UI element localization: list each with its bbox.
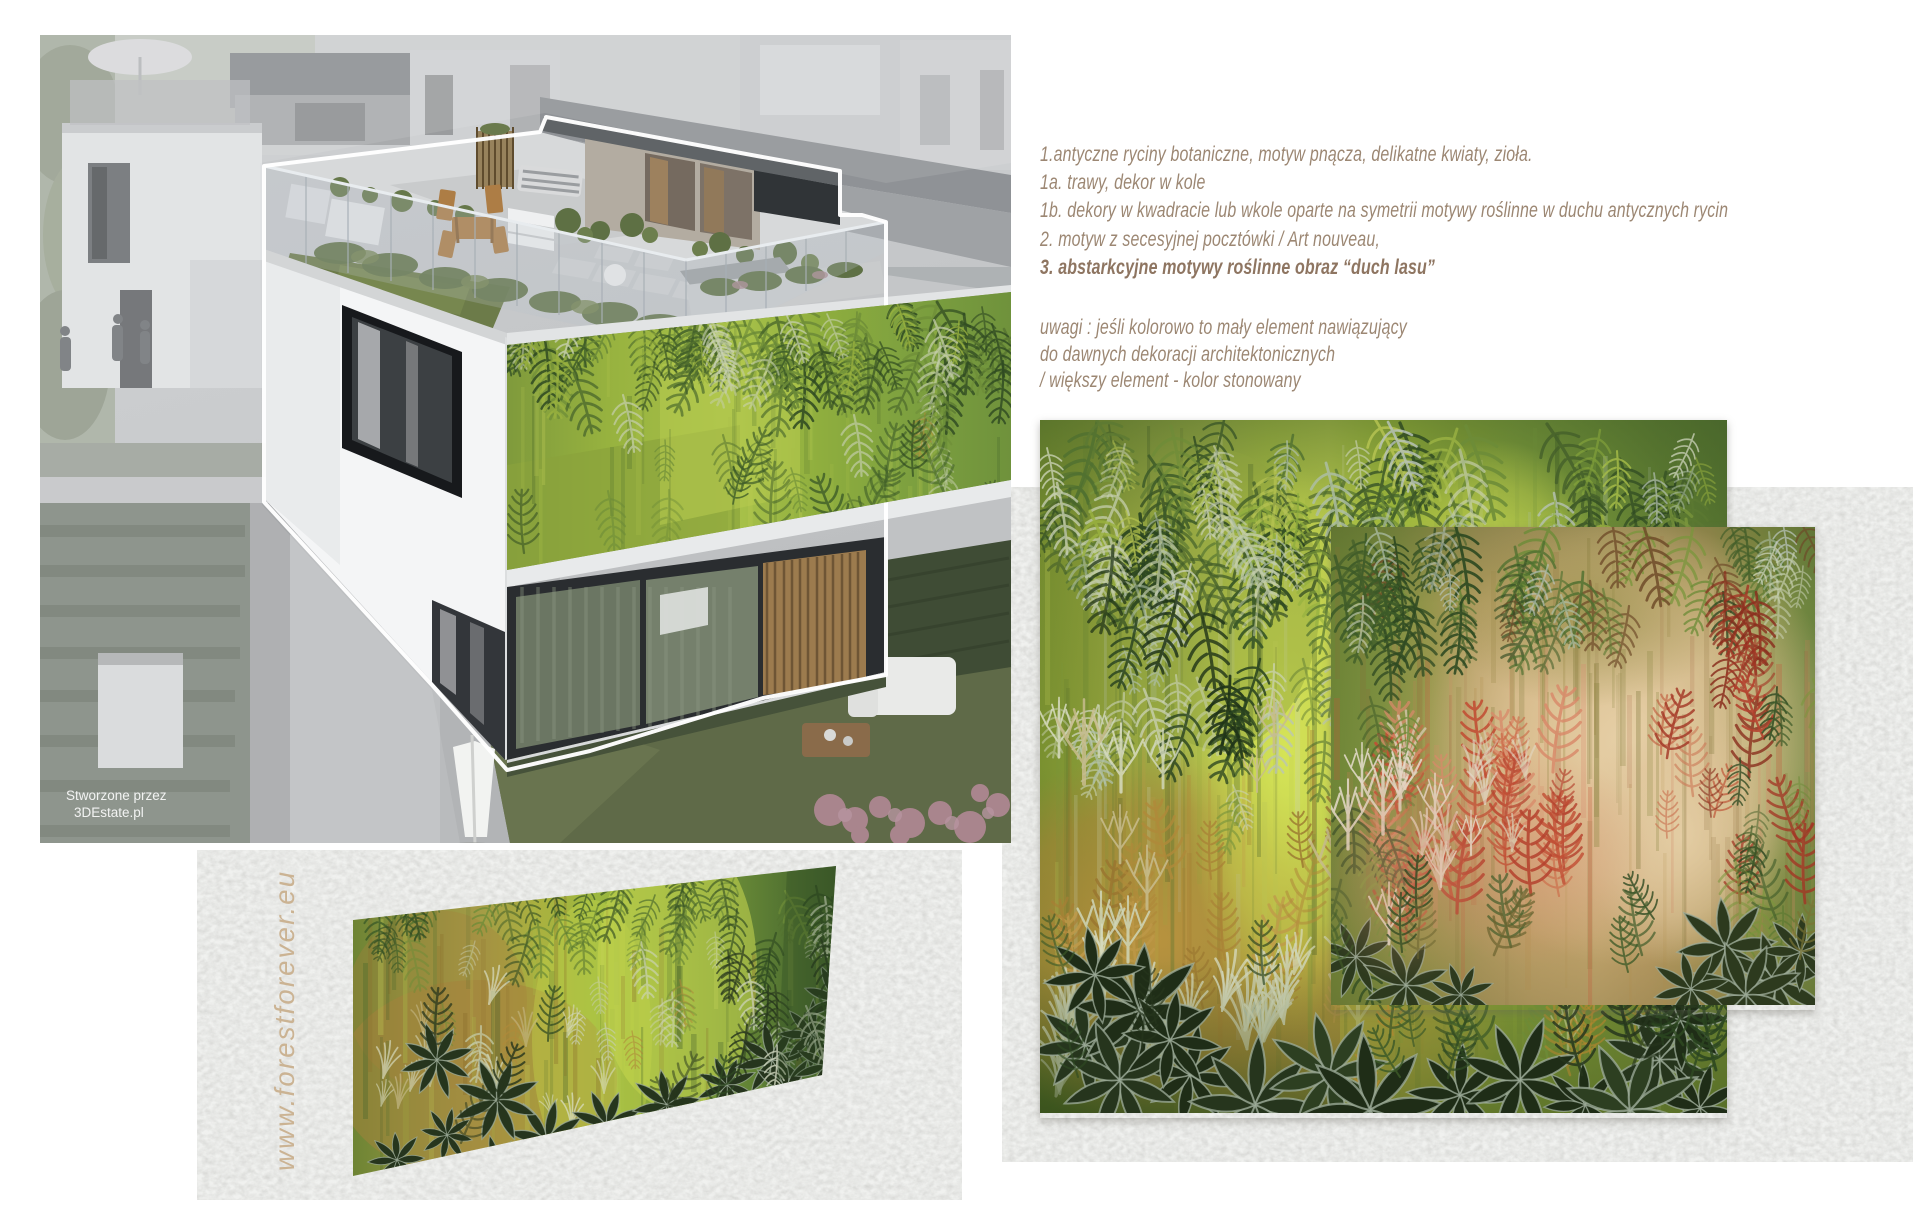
svg-text:www.forestforever.eu: www.forestforever.eu — [269, 870, 300, 1171]
svg-text:3DEstate.pl: 3DEstate.pl — [74, 805, 144, 820]
svg-text:Stworzone przez: Stworzone przez — [66, 788, 167, 803]
